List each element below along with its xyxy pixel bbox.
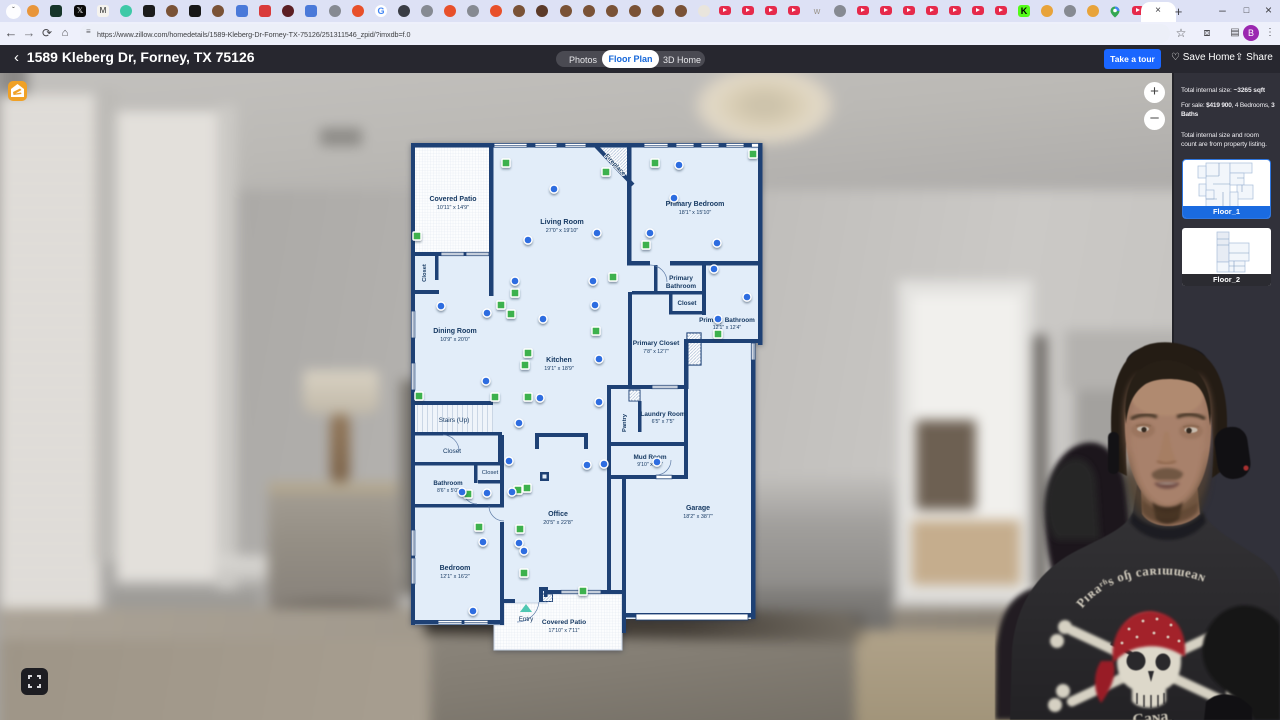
svg-text:Closet: Closet — [482, 470, 499, 476]
svg-text:Bathroom: Bathroom — [666, 283, 696, 290]
svg-text:18'2" x 38'7": 18'2" x 38'7" — [683, 514, 713, 520]
svg-text:27'0" x 19'10": 27'0" x 19'10" — [546, 228, 579, 234]
svg-text:8'6" x 5'0": 8'6" x 5'0" — [437, 488, 459, 494]
svg-text:17'10" x 7'11": 17'10" x 7'11" — [549, 628, 580, 634]
svg-text:6'5" x 7'5": 6'5" x 7'5" — [652, 419, 675, 425]
svg-text:10'11" x 14'9": 10'11" x 14'9" — [437, 205, 469, 211]
svg-text:18'1" x 15'10": 18'1" x 15'10" — [679, 210, 712, 216]
svg-text:Covered Patio: Covered Patio — [542, 619, 586, 626]
svg-text:Office: Office — [548, 511, 568, 518]
svg-text:Entry: Entry — [519, 616, 534, 623]
svg-text:Mud Room: Mud Room — [633, 454, 666, 461]
svg-text:10'9" x 20'0": 10'9" x 20'0" — [440, 337, 470, 343]
svg-text:12'1" x 16'2": 12'1" x 16'2" — [440, 574, 470, 580]
svg-text:Closet: Closet — [443, 448, 461, 455]
svg-text:Stairs (Up): Stairs (Up) — [439, 417, 470, 424]
svg-text:Closet: Closet — [422, 264, 428, 282]
svg-text:Laundry Room: Laundry Room — [640, 411, 685, 418]
svg-text:Primary: Primary — [669, 275, 693, 282]
svg-text:Garage: Garage — [686, 505, 710, 512]
svg-text:Bathroom: Bathroom — [433, 480, 463, 487]
svg-text:Kitchen: Kitchen — [546, 357, 572, 364]
svg-text:19'1" x 18'9": 19'1" x 18'9" — [544, 366, 574, 372]
svg-text:Primary Closet: Primary Closet — [633, 340, 680, 347]
svg-text:Covered Patio: Covered Patio — [429, 196, 476, 203]
svg-text:Primary Bathroom: Primary Bathroom — [699, 317, 755, 324]
svg-text:Dining Room: Dining Room — [433, 328, 477, 335]
svg-text:20'5" x 22'8": 20'5" x 22'8" — [543, 520, 573, 526]
svg-text:Closet: Closet — [678, 300, 697, 307]
svg-text:Bedroom: Bedroom — [440, 565, 471, 572]
svg-text:Living Room: Living Room — [540, 217, 584, 226]
svg-text:Pantry: Pantry — [622, 413, 628, 432]
svg-text:7'8" x 12'7": 7'8" x 12'7" — [643, 349, 669, 355]
